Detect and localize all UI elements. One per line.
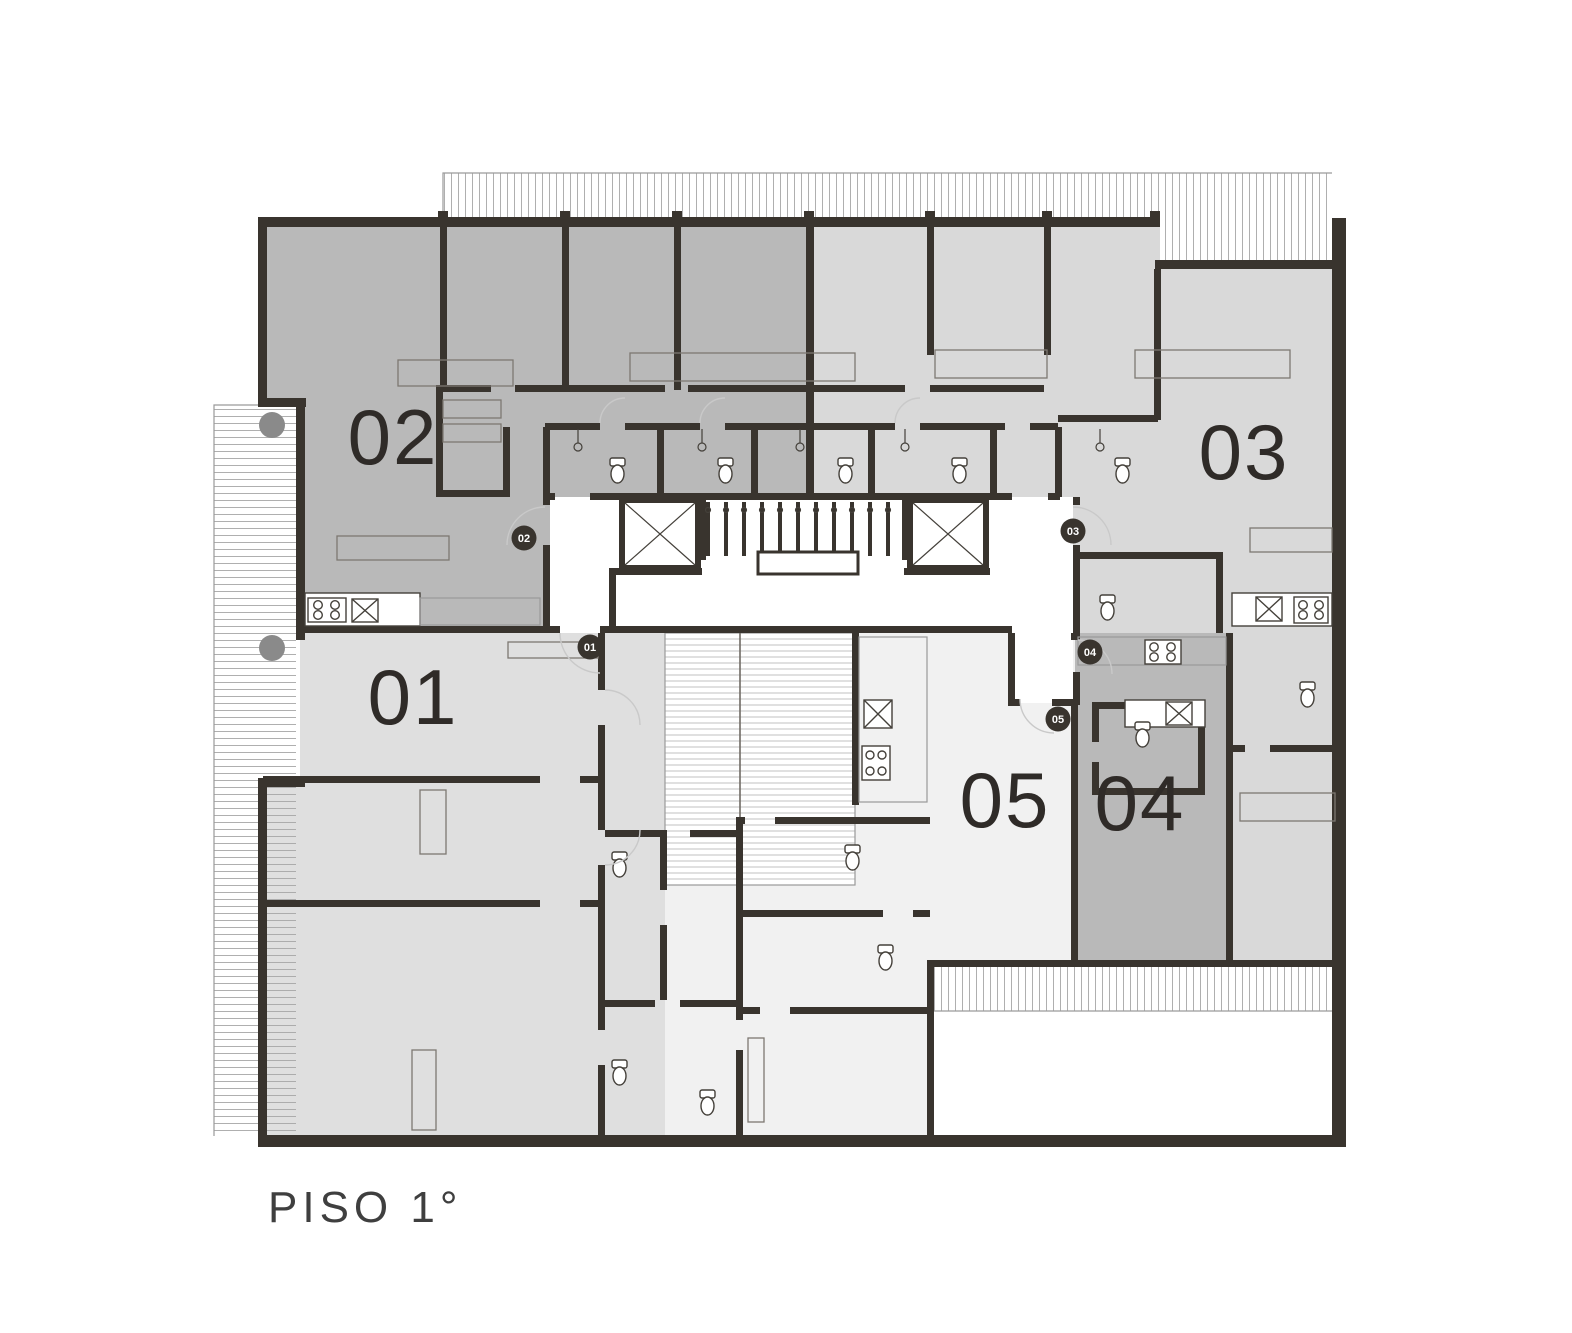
central-deck xyxy=(665,633,855,885)
unit-03-badge: 03 xyxy=(1061,519,1086,544)
unit-01-label: 01 xyxy=(368,653,459,741)
unit-02-badge: 02 xyxy=(512,526,537,551)
floor-plan-page: 02 01 03 04 05 02 01 03 04 05 PISO 1° xyxy=(0,0,1572,1333)
sink-icon xyxy=(1256,597,1282,621)
floor-plan-svg: 02 01 03 04 05 02 01 03 04 05 PISO 1° xyxy=(0,0,1572,1333)
corridor-stub-area xyxy=(1008,633,1073,703)
stove-icon xyxy=(1294,597,1328,623)
sink-icon xyxy=(352,599,378,622)
unit-04-badge: 04 xyxy=(1078,640,1103,665)
column xyxy=(259,635,285,661)
elevator-right xyxy=(910,500,986,568)
unit-01-area xyxy=(267,633,665,1135)
elevator-left xyxy=(622,500,698,568)
svg-text:04: 04 xyxy=(1084,647,1097,659)
svg-text:02: 02 xyxy=(518,533,530,545)
svg-text:05: 05 xyxy=(1052,714,1064,726)
sink-icon xyxy=(1166,702,1192,725)
unit-04-label: 04 xyxy=(1095,759,1186,847)
sink-icon xyxy=(864,700,892,728)
unit-05-badge: 05 xyxy=(1046,707,1071,732)
stove-icon xyxy=(862,746,890,780)
terrace-area xyxy=(934,1011,1332,1135)
unit-01-badge: 01 xyxy=(578,635,603,660)
svg-text:03: 03 xyxy=(1067,526,1079,538)
stove-icon xyxy=(1145,640,1181,664)
svg-text:01: 01 xyxy=(584,642,596,654)
floor-title: PISO 1° xyxy=(268,1183,462,1232)
unit-03-label: 03 xyxy=(1199,408,1290,496)
unit-02-label: 02 xyxy=(348,393,439,481)
column xyxy=(259,412,285,438)
balcony-left xyxy=(214,405,296,1136)
unit-05-label: 05 xyxy=(960,756,1051,844)
stove-icon xyxy=(308,598,346,622)
balcony-bottom-right xyxy=(934,967,1332,1011)
